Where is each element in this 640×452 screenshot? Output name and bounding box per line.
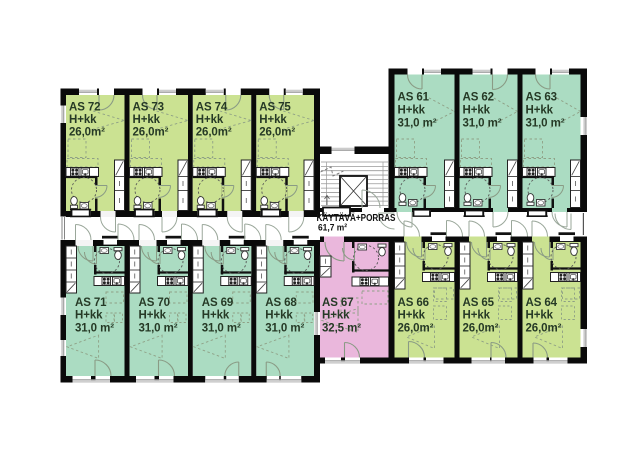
svg-text:H+kk: H+kk (196, 114, 224, 126)
svg-text:H+kk: H+kk (526, 104, 554, 116)
svg-text:26,0m²: 26,0m² (463, 323, 499, 335)
svg-text:AS 72: AS 72 (69, 101, 100, 113)
svg-text:AS 64: AS 64 (526, 297, 558, 309)
svg-text:H+kk: H+kk (69, 114, 97, 126)
svg-text:31,0 m²: 31,0 m² (526, 118, 565, 130)
svg-text:31,0 m²: 31,0 m² (75, 323, 114, 335)
svg-text:31,0 m²: 31,0 m² (139, 323, 178, 335)
svg-text:H+kk: H+kk (133, 114, 161, 126)
svg-text:26,0m²: 26,0m² (259, 127, 295, 139)
svg-text:H+kk: H+kk (463, 309, 491, 321)
svg-text:H+kk: H+kk (463, 104, 491, 116)
svg-text:H+kk: H+kk (526, 309, 554, 321)
svg-text:31,0 m²: 31,0 m² (202, 323, 241, 335)
svg-text:AS 73: AS 73 (133, 101, 164, 113)
svg-text:31,0 m²: 31,0 m² (265, 323, 304, 335)
svg-text:AS 70: AS 70 (139, 297, 170, 309)
svg-text:H+kk: H+kk (265, 309, 293, 321)
svg-text:26,0m²: 26,0m² (398, 323, 434, 335)
svg-text:AS 62: AS 62 (463, 91, 494, 103)
svg-text:H+kk: H+kk (398, 104, 426, 116)
svg-text:26,0m²: 26,0m² (526, 323, 562, 335)
svg-text:32,5 m²: 32,5 m² (322, 323, 361, 335)
svg-text:AS 65: AS 65 (463, 297, 495, 309)
svg-text:31,0 m²: 31,0 m² (398, 118, 437, 130)
svg-text:31,0 m²: 31,0 m² (463, 118, 502, 130)
svg-text:AS 63: AS 63 (526, 91, 557, 103)
svg-text:H+kk: H+kk (322, 309, 350, 321)
svg-text:61,7 m²: 61,7 m² (318, 223, 347, 234)
svg-text:H+kk: H+kk (398, 309, 426, 321)
svg-text:AS 74: AS 74 (196, 101, 228, 113)
svg-text:AS 69: AS 69 (202, 297, 233, 309)
svg-text:26,0m²: 26,0m² (133, 127, 169, 139)
svg-text:AS 61: AS 61 (398, 91, 430, 103)
svg-text:H+kk: H+kk (202, 309, 230, 321)
svg-text:AS 68: AS 68 (265, 297, 297, 309)
svg-text:AS 67: AS 67 (322, 297, 353, 309)
svg-text:H+kk: H+kk (259, 114, 287, 126)
svg-text:AS 75: AS 75 (259, 101, 291, 113)
svg-text:AS 66: AS 66 (398, 297, 429, 309)
svg-text:H+kk: H+kk (75, 309, 103, 321)
svg-text:H+kk: H+kk (139, 309, 167, 321)
svg-text:26,0m²: 26,0m² (196, 127, 232, 139)
svg-text:AS 71: AS 71 (75, 297, 107, 309)
svg-text:26,0m²: 26,0m² (69, 127, 105, 139)
